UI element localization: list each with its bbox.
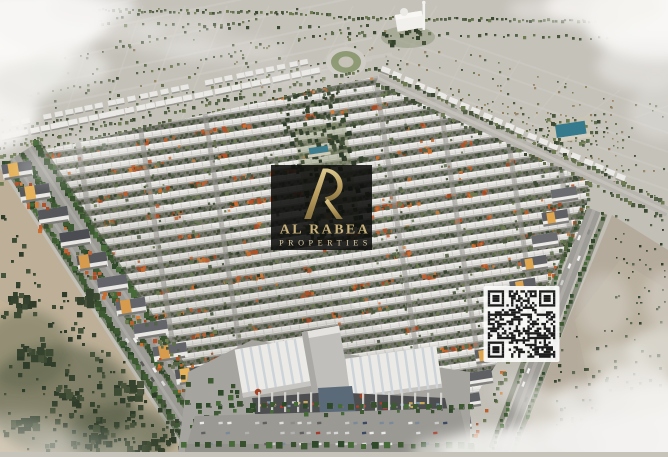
svg-text:AL RABEA: AL RABEA [280, 223, 370, 238]
svg-text:PROPERTIES: PROPERTIES [279, 239, 372, 248]
